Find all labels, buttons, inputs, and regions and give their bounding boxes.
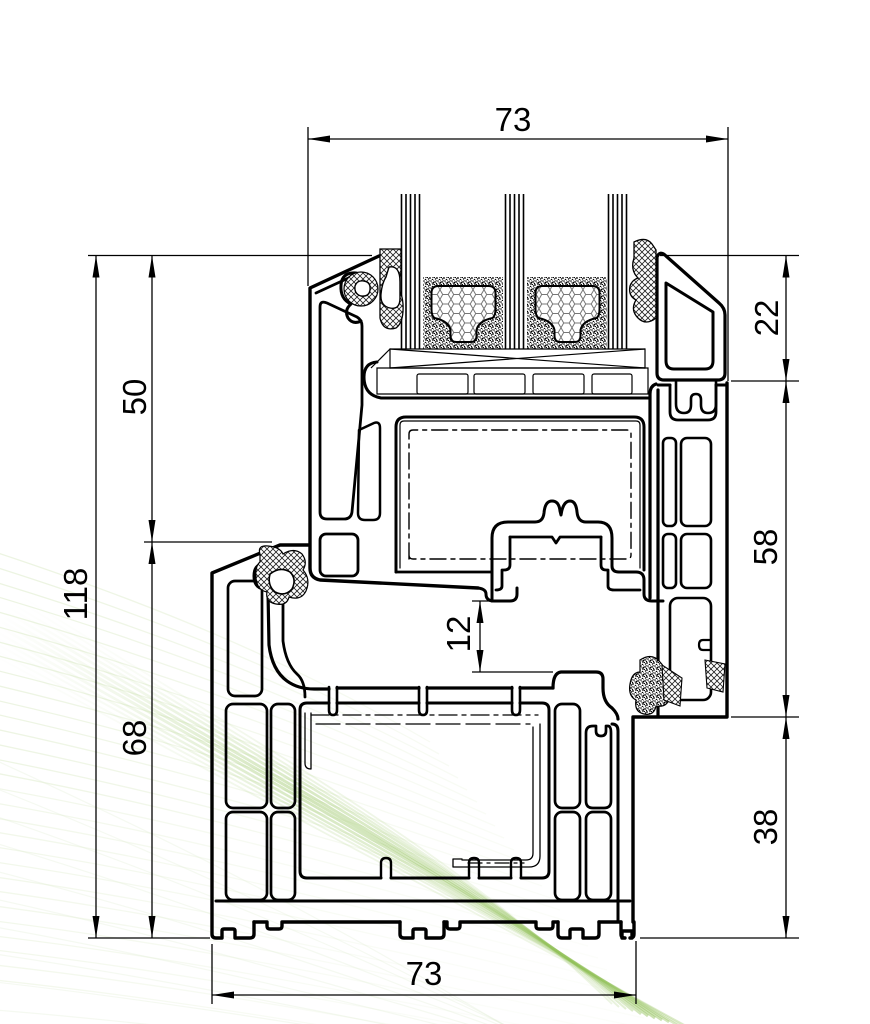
svg-text:73: 73	[495, 101, 532, 138]
svg-text:50: 50	[116, 379, 153, 416]
svg-text:118: 118	[57, 568, 94, 621]
svg-text:58: 58	[747, 529, 784, 566]
svg-text:73: 73	[406, 955, 443, 992]
svg-text:22: 22	[748, 300, 785, 337]
svg-text:12: 12	[440, 616, 477, 653]
svg-text:38: 38	[747, 809, 784, 846]
svg-text:68: 68	[116, 720, 153, 757]
